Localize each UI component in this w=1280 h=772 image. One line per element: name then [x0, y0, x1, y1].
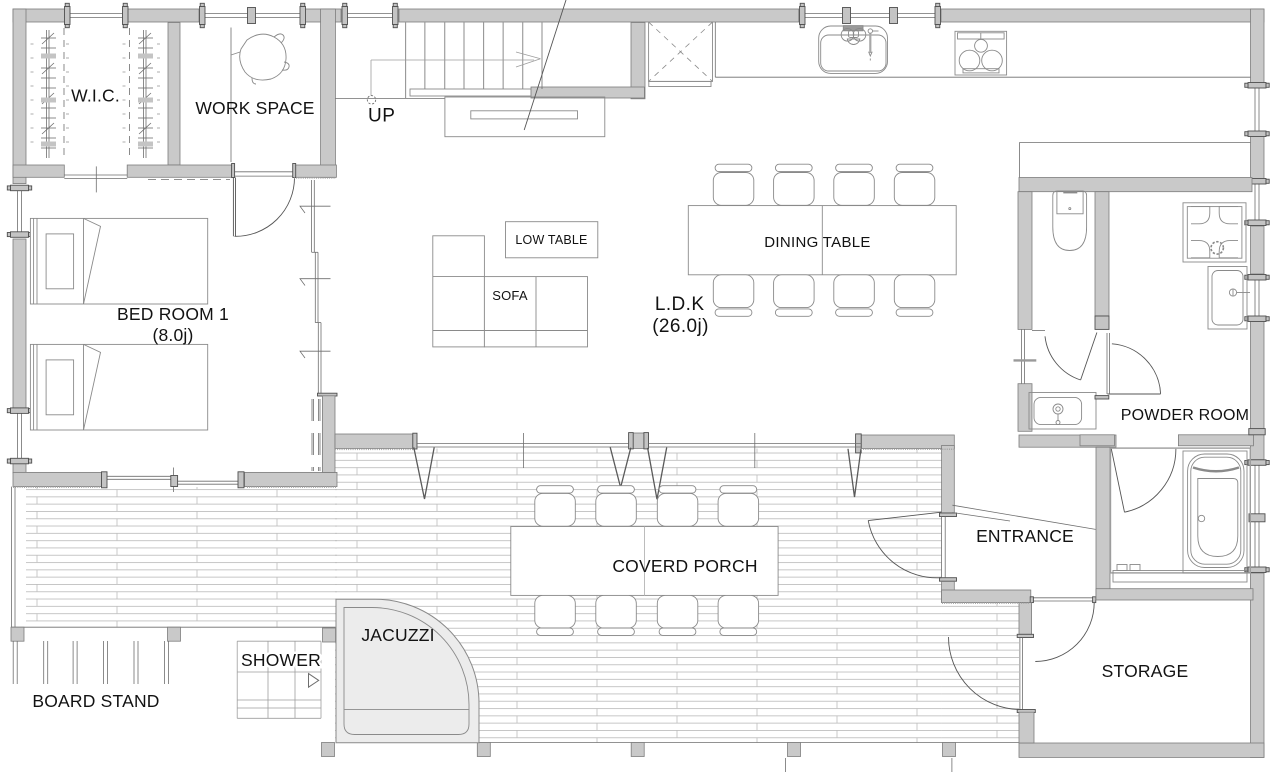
svg-text:(8.0j): (8.0j) — [152, 325, 193, 345]
svg-text:STORAGE: STORAGE — [1102, 661, 1189, 681]
svg-text:BOARD STAND: BOARD STAND — [32, 691, 159, 711]
svg-text:(26.0j): (26.0j) — [652, 316, 709, 337]
svg-text:JACUZZI: JACUZZI — [361, 625, 434, 645]
svg-text:POWDER ROOM: POWDER ROOM — [1121, 407, 1249, 424]
svg-text:ENTRANCE: ENTRANCE — [976, 526, 1074, 546]
svg-text:SOFA: SOFA — [492, 288, 528, 303]
svg-text:DINING TABLE: DINING TABLE — [764, 234, 870, 251]
svg-text:SHOWER: SHOWER — [241, 650, 321, 670]
svg-text:COVERD PORCH: COVERD PORCH — [612, 556, 757, 576]
svg-text:UP: UP — [368, 106, 395, 127]
svg-text:L.D.K: L.D.K — [655, 294, 705, 315]
svg-text:BED ROOM 1: BED ROOM 1 — [117, 304, 229, 324]
svg-text:WORK SPACE: WORK SPACE — [195, 98, 314, 118]
svg-text:LOW TABLE: LOW TABLE — [515, 233, 587, 247]
svg-text:W.I.C.: W.I.C. — [71, 86, 120, 106]
